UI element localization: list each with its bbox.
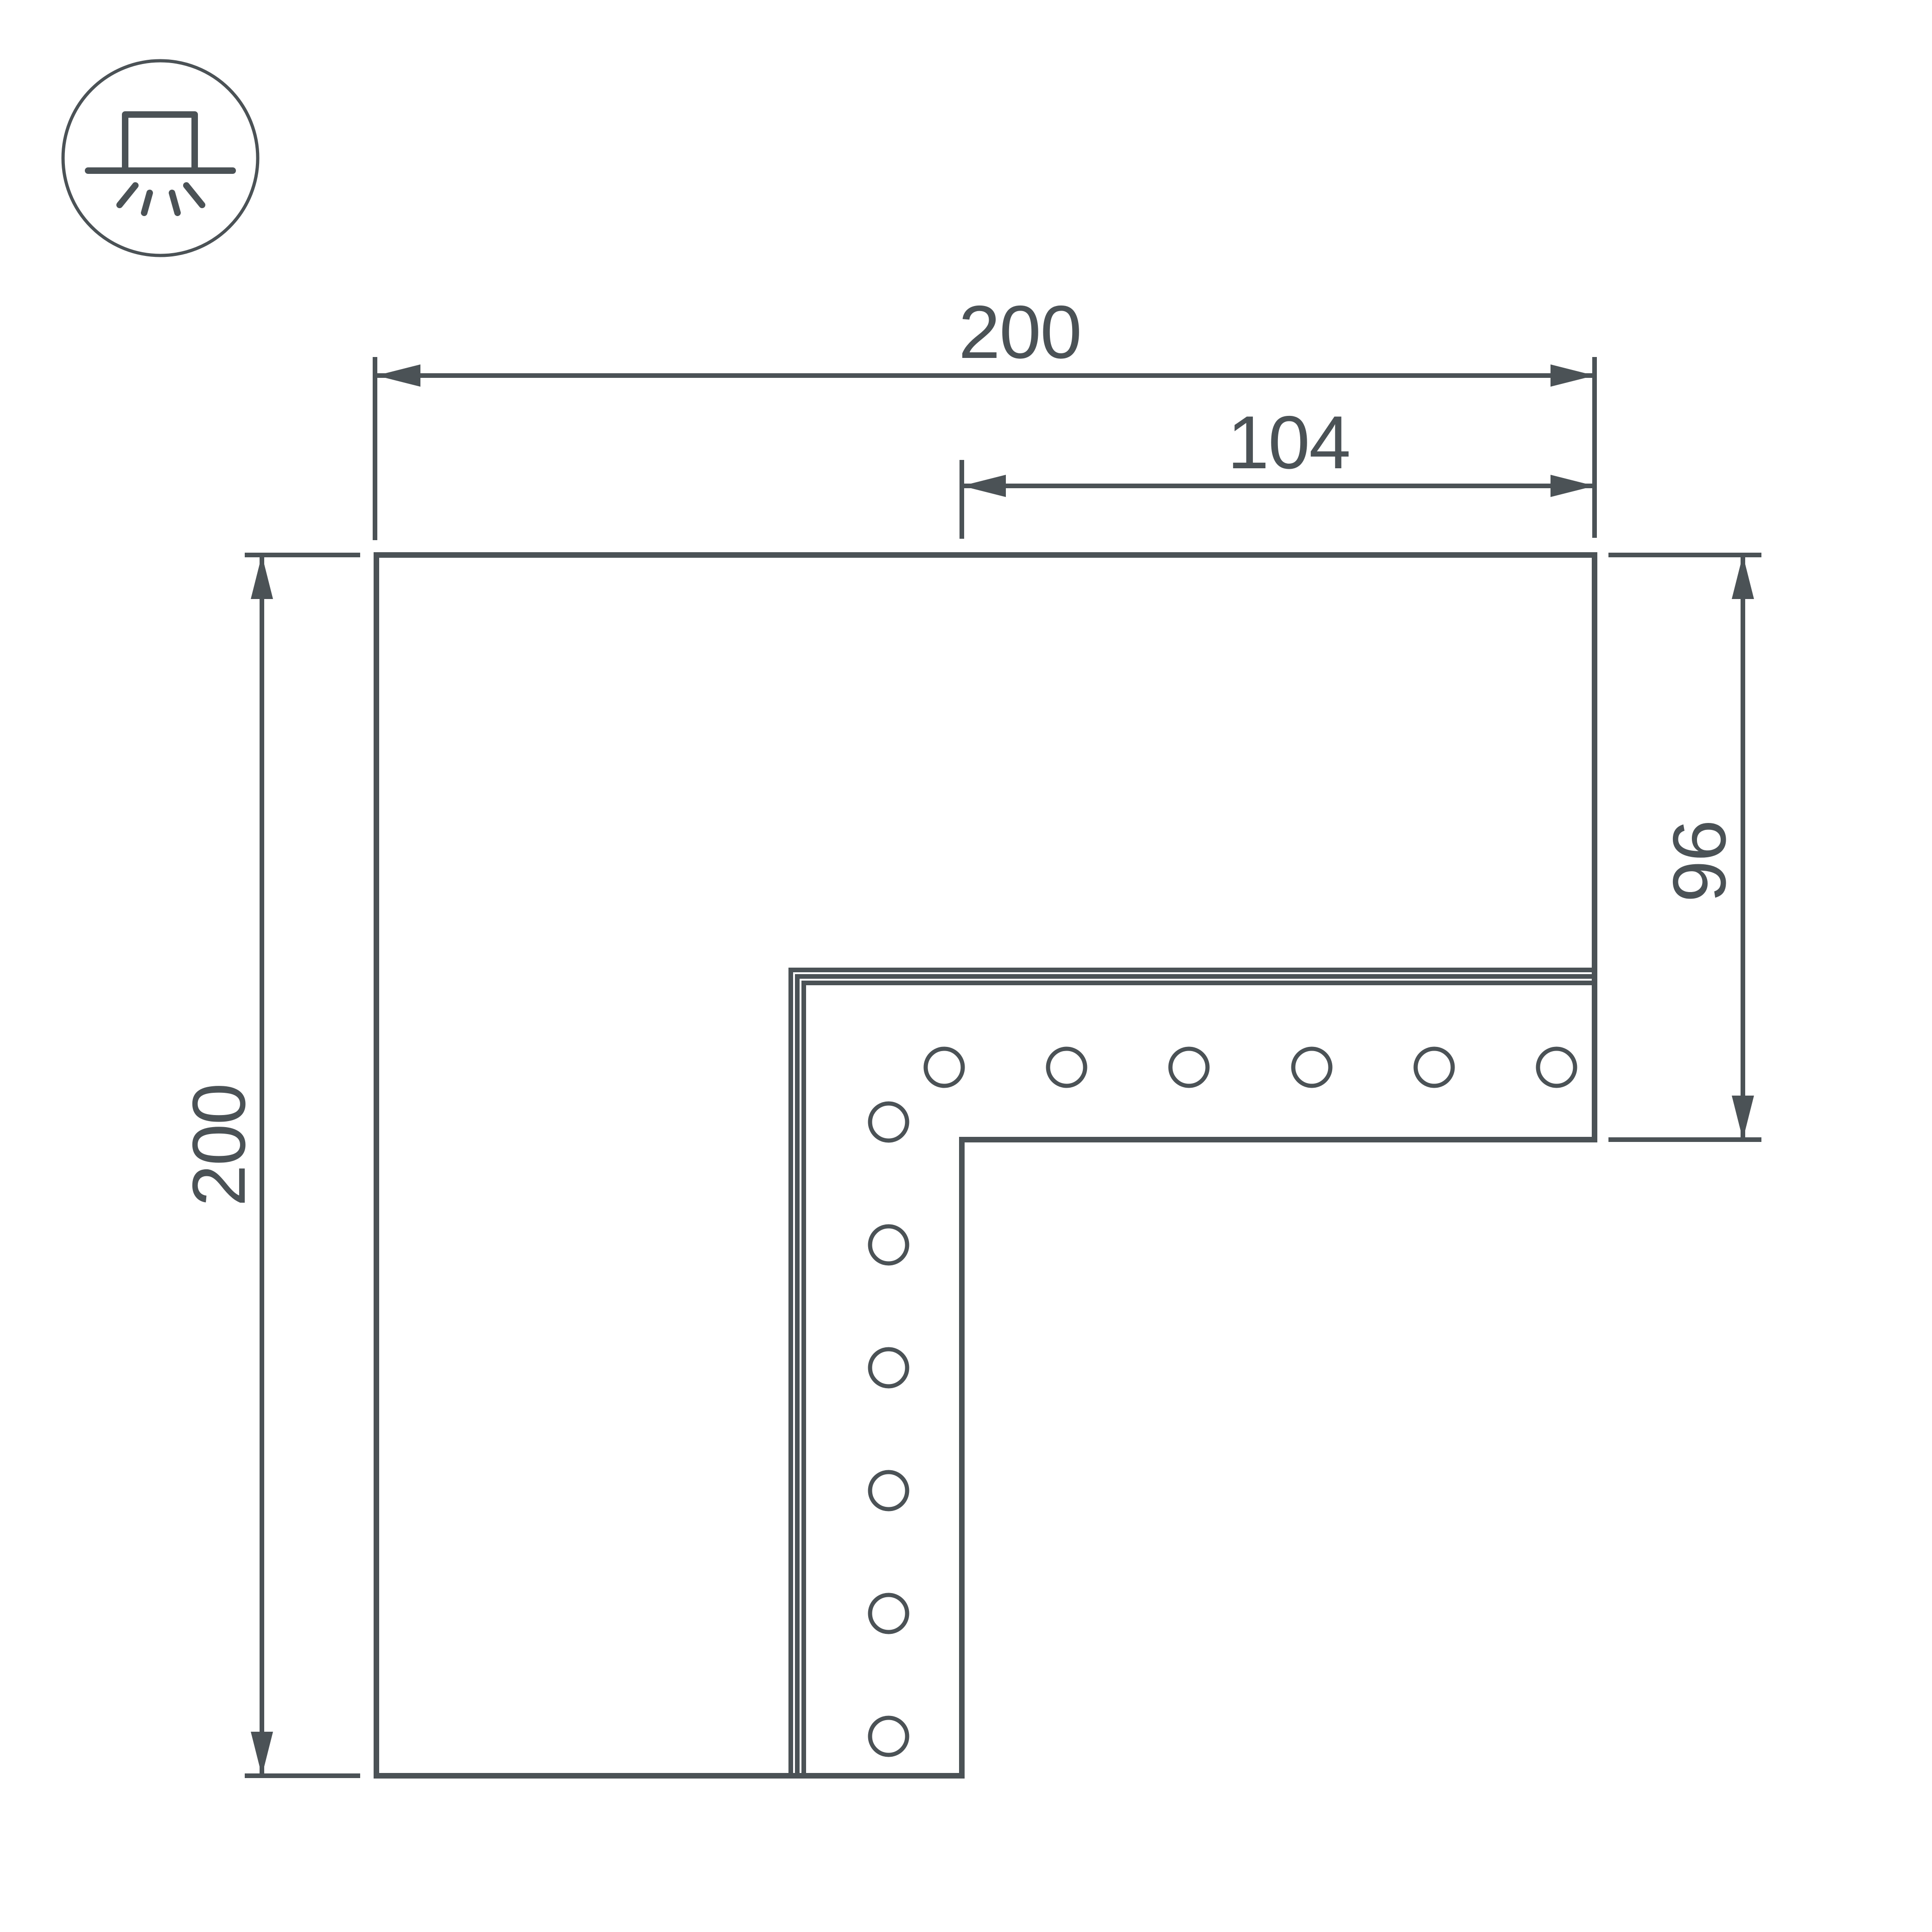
connector-hole: [870, 1226, 907, 1263]
arrowhead-top: [1732, 555, 1754, 599]
connector-hole: [870, 1718, 907, 1755]
surface-mounted-light-icon: [59, 57, 261, 259]
dimension-drawing: 200 104 200 96: [0, 0, 1932, 1932]
connector-hole: [1416, 1049, 1453, 1086]
drawing-page: 200 104 200 96: [0, 0, 1932, 1932]
arrowhead-bottom: [251, 1732, 273, 1776]
connector-hole: [1048, 1049, 1085, 1086]
dim-outer-width: 200: [375, 290, 1595, 540]
dim-inner-width: 104: [962, 401, 1595, 539]
connector-hole: [1293, 1049, 1330, 1086]
connector-hole: [926, 1049, 963, 1086]
connector-hole: [1170, 1049, 1207, 1086]
arrowhead-bottom: [1732, 1096, 1754, 1140]
dim-outer-height: 200: [177, 555, 360, 1776]
dim-label-inner-height: 96: [1658, 821, 1741, 902]
connector-hole: [870, 1103, 907, 1141]
part-outline: [376, 555, 1595, 1776]
dim-label-outer-height: 200: [177, 1084, 261, 1206]
arrowhead-right: [1551, 475, 1595, 497]
connector-hole: [870, 1349, 907, 1386]
icon-light-rays: [120, 185, 202, 213]
arrowhead-right: [1551, 364, 1595, 387]
connector-hole: [870, 1595, 907, 1632]
arrowhead-left: [376, 364, 420, 387]
arrowhead-top: [251, 555, 273, 599]
connector-hole: [1538, 1049, 1575, 1086]
strip-holes: [870, 1049, 1575, 1755]
icon-circle: [63, 61, 258, 255]
surface-mounted-light-icon-svg: [59, 57, 261, 259]
icon-lamp-body: [125, 115, 195, 171]
connector-hole: [870, 1472, 907, 1509]
dim-inner-height: 96: [1608, 555, 1761, 1140]
dim-label-inner-width: 104: [1227, 401, 1350, 485]
arrowhead-left: [962, 475, 1006, 497]
dim-label-outer-width: 200: [959, 290, 1081, 374]
